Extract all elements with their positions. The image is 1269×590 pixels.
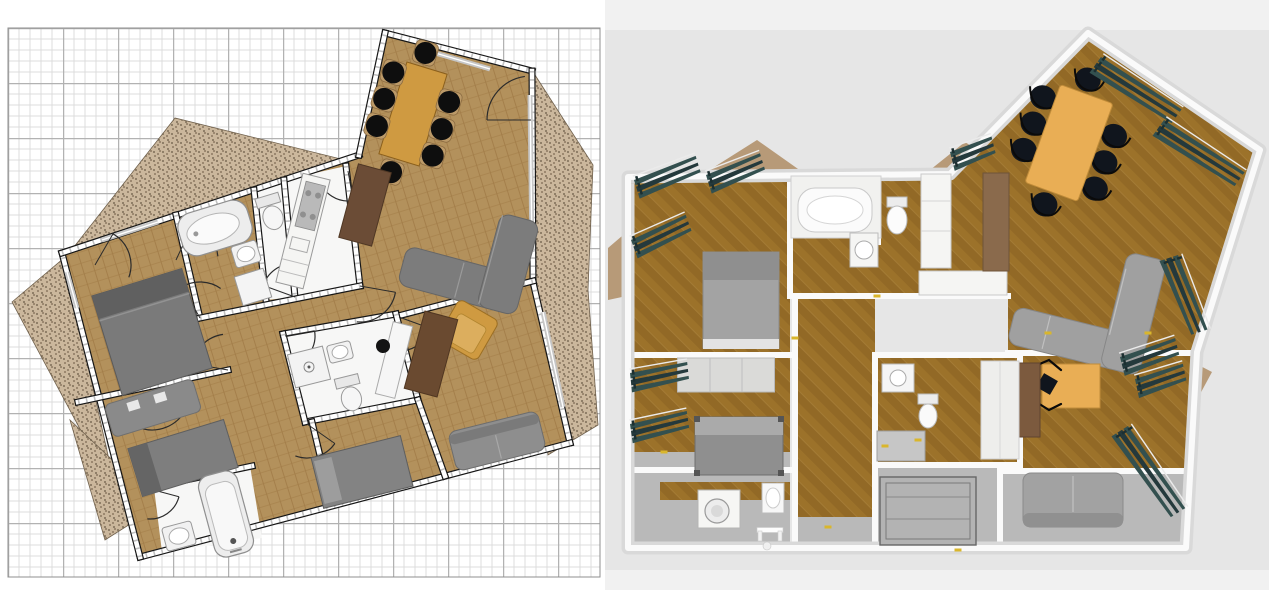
sideboard	[983, 173, 1009, 271]
washbasin	[882, 364, 914, 392]
sofa	[1023, 473, 1123, 527]
bed	[703, 252, 779, 349]
hallway-floor	[795, 296, 875, 548]
toilet	[887, 197, 907, 234]
light-switch-mark	[792, 337, 799, 340]
background-strip	[605, 0, 1269, 30]
plan-2d-panel[interactable]	[0, 0, 605, 590]
view-3d-panel[interactable]	[605, 0, 1269, 590]
washing-machine	[698, 490, 740, 528]
shower-tray	[877, 431, 925, 461]
light-switch-mark	[825, 526, 832, 529]
washbasin	[850, 233, 878, 267]
wardrobe	[678, 358, 775, 392]
light-switch-mark	[1045, 332, 1052, 335]
toilet	[918, 394, 938, 428]
light-switch-mark	[1145, 332, 1152, 335]
bed	[880, 477, 976, 545]
washbasin	[762, 483, 784, 513]
light-switch-mark	[915, 439, 922, 442]
bed	[694, 416, 784, 476]
light-switch-mark	[955, 549, 962, 552]
floor-plan-app	[0, 0, 1269, 590]
wardrobe	[981, 361, 1019, 459]
bathtub	[791, 176, 881, 238]
light-switch-mark	[874, 295, 881, 298]
desk-and-chair	[1033, 360, 1100, 410]
light-switch-mark	[661, 451, 668, 454]
background-strip	[605, 570, 1269, 590]
